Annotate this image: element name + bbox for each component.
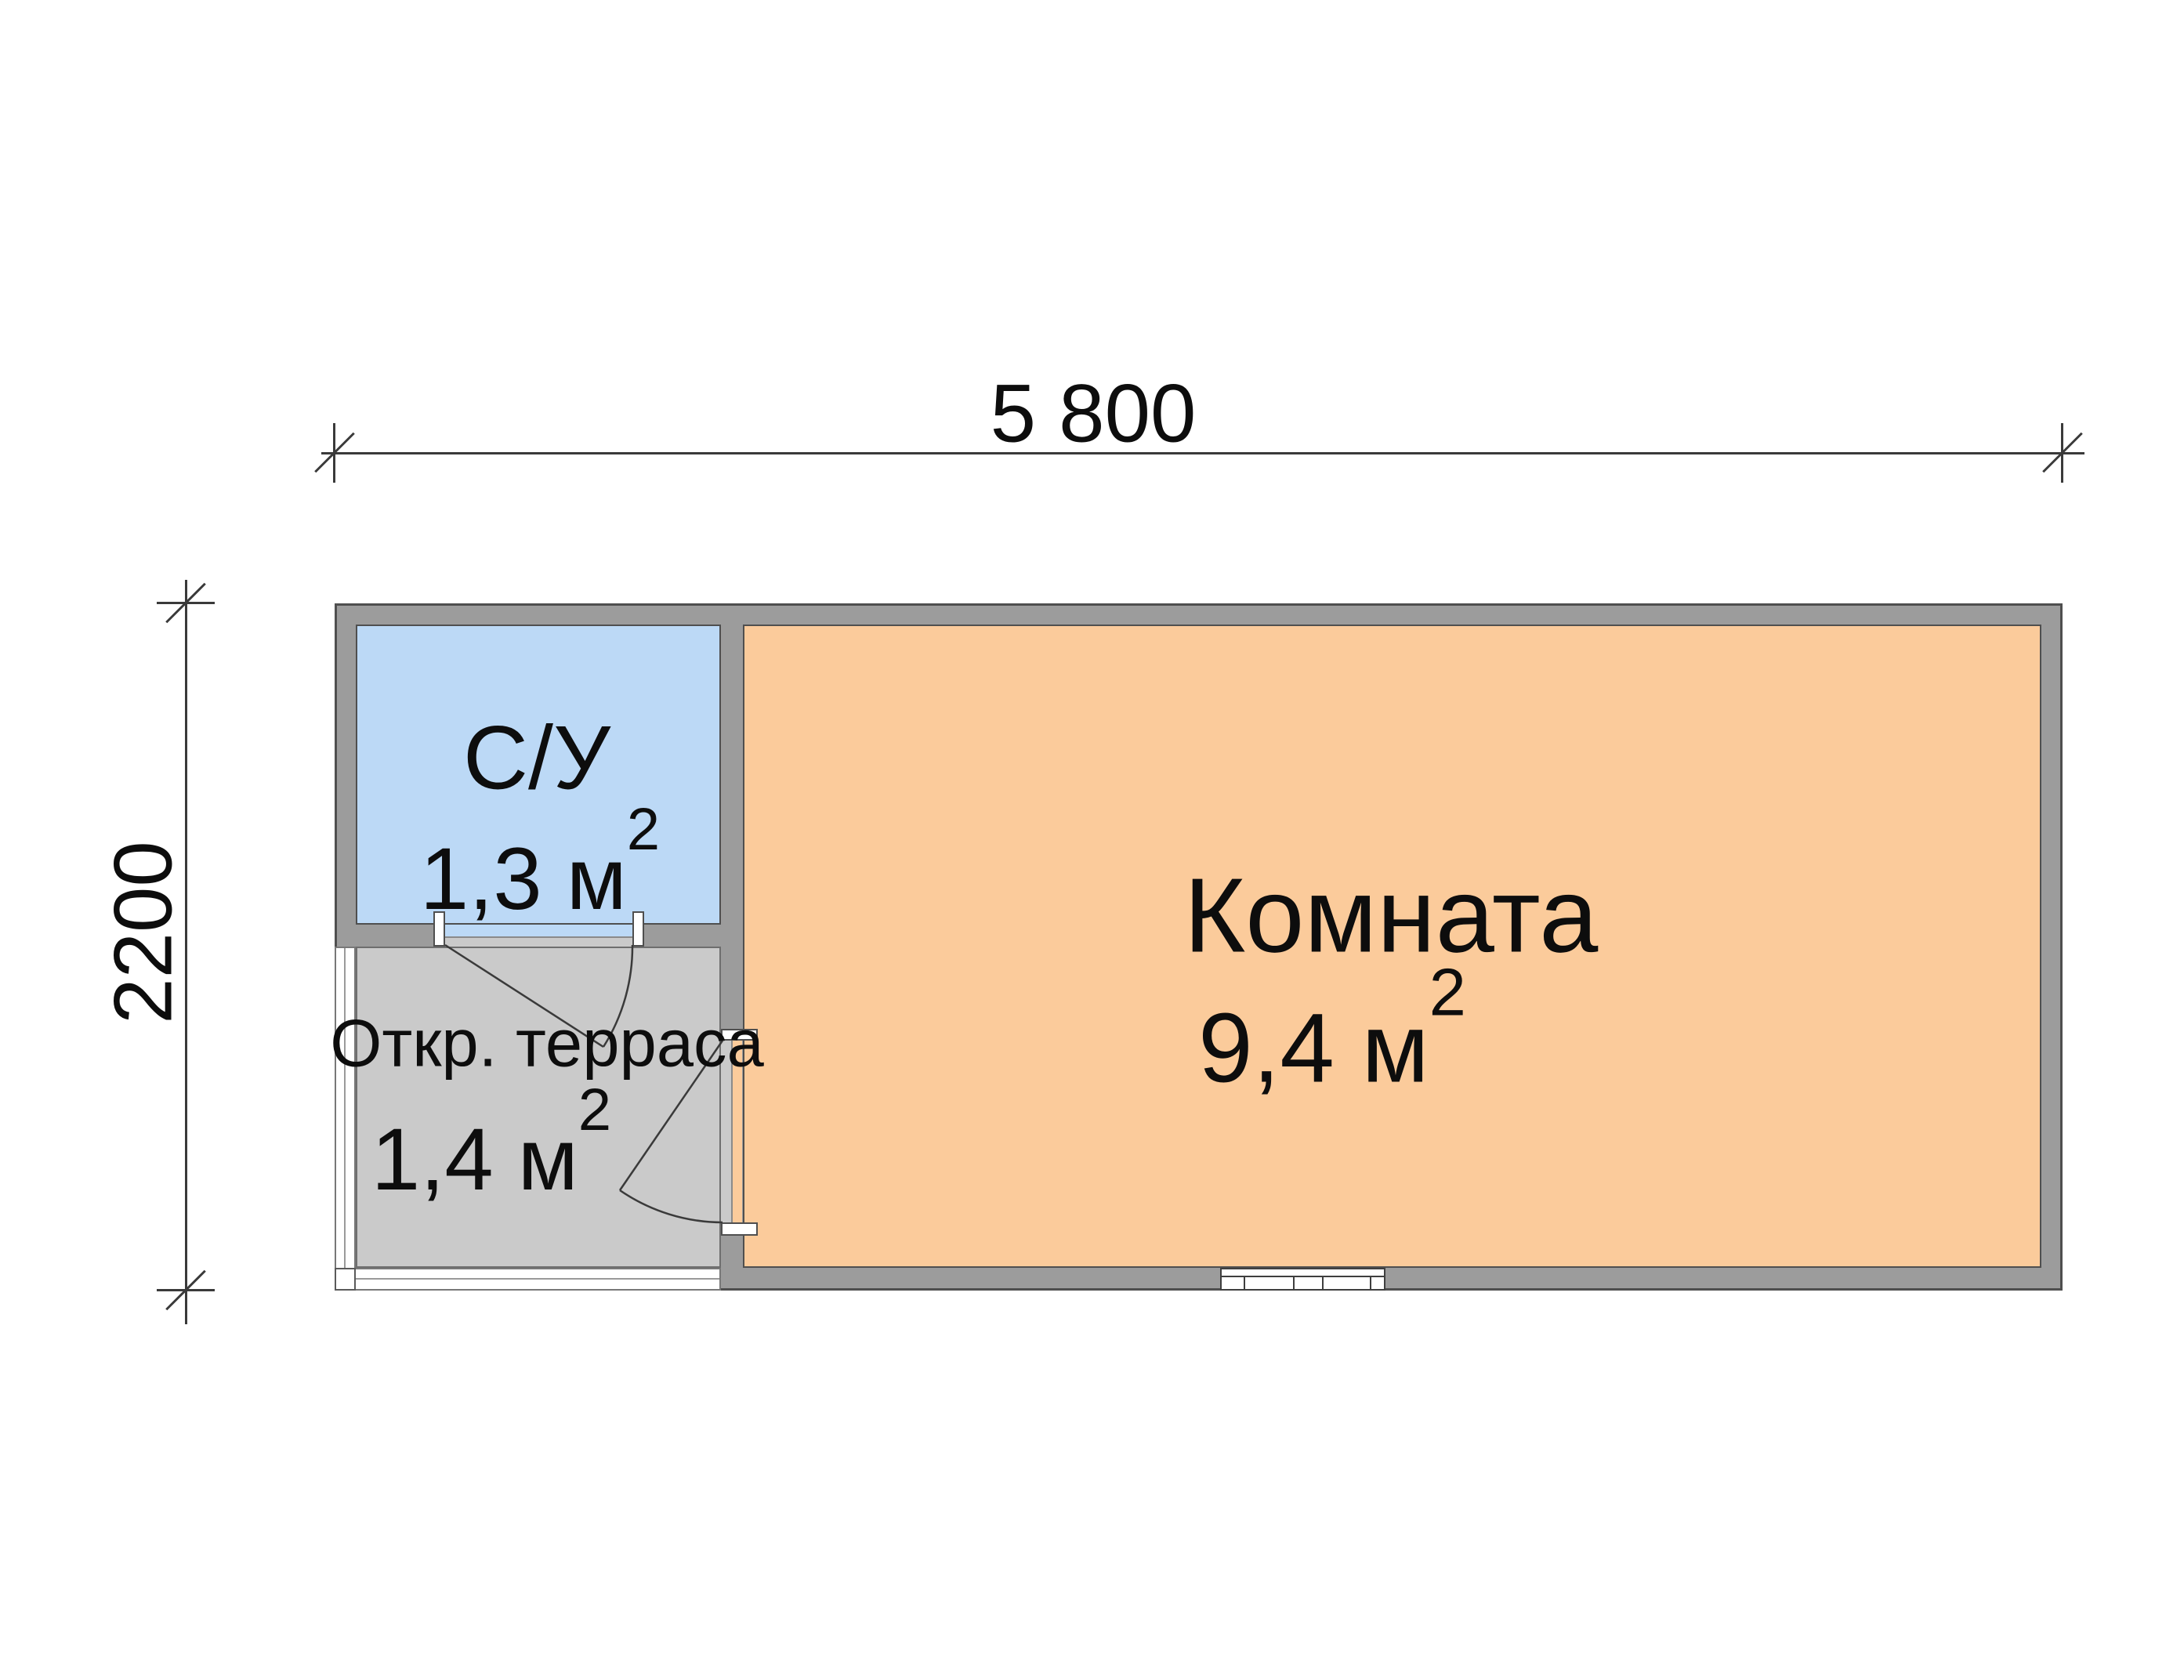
- dimension-top-line: [321, 452, 2084, 454]
- terrace-name-text: Откр. терраса: [330, 1007, 764, 1081]
- room-door-jamb-bottom: [721, 1222, 758, 1236]
- window-sill-line: [1222, 1276, 1384, 1277]
- bathroom-name-text: С/У: [463, 708, 610, 809]
- bathroom-area-sup: 2: [627, 796, 660, 863]
- terrace-area-text: 1,4 м: [371, 1110, 578, 1208]
- terrace-area-sup: 2: [578, 1077, 611, 1143]
- window-mullion: [1370, 1276, 1371, 1289]
- terrace-corner-post: [335, 1268, 356, 1291]
- bathroom-area-text: 1,3 м: [420, 830, 627, 928]
- window-mullion: [1244, 1276, 1245, 1289]
- window-bottom-wall: [1220, 1268, 1385, 1291]
- terrace-name-label: Откр. терраса: [330, 1011, 764, 1077]
- dimension-top-label: 5 800: [991, 373, 1197, 455]
- bathroom-doorway-floor-gray: [445, 936, 632, 947]
- dimension-left-label: 2200: [103, 841, 185, 1024]
- bathroom-name-label: С/У: [463, 714, 610, 804]
- floor-plan-canvas: 5 800 2200: [0, 0, 2184, 1680]
- main-room-name-text: Комната: [1184, 856, 1599, 975]
- terrace-edge-midline: [344, 948, 346, 1287]
- main-room-area-label: 9,4 м2: [1198, 1000, 1466, 1098]
- terrace-edge-midline: [336, 1278, 719, 1280]
- main-room-name-label: Комната: [1184, 863, 1599, 969]
- terrace-open-edge-bottom: [335, 1268, 721, 1291]
- main-room-area-sup: 2: [1429, 955, 1466, 1030]
- terrace-open-edge-left: [335, 947, 356, 1289]
- window-mullion: [1293, 1276, 1295, 1289]
- window-mullion: [1322, 1276, 1324, 1289]
- main-room-area-text: 9,4 м: [1198, 994, 1429, 1103]
- terrace-area-label: 1,4 м2: [371, 1116, 611, 1204]
- bathroom-area-label: 1,3 м2: [420, 835, 660, 923]
- terrace-floor: [356, 947, 721, 1268]
